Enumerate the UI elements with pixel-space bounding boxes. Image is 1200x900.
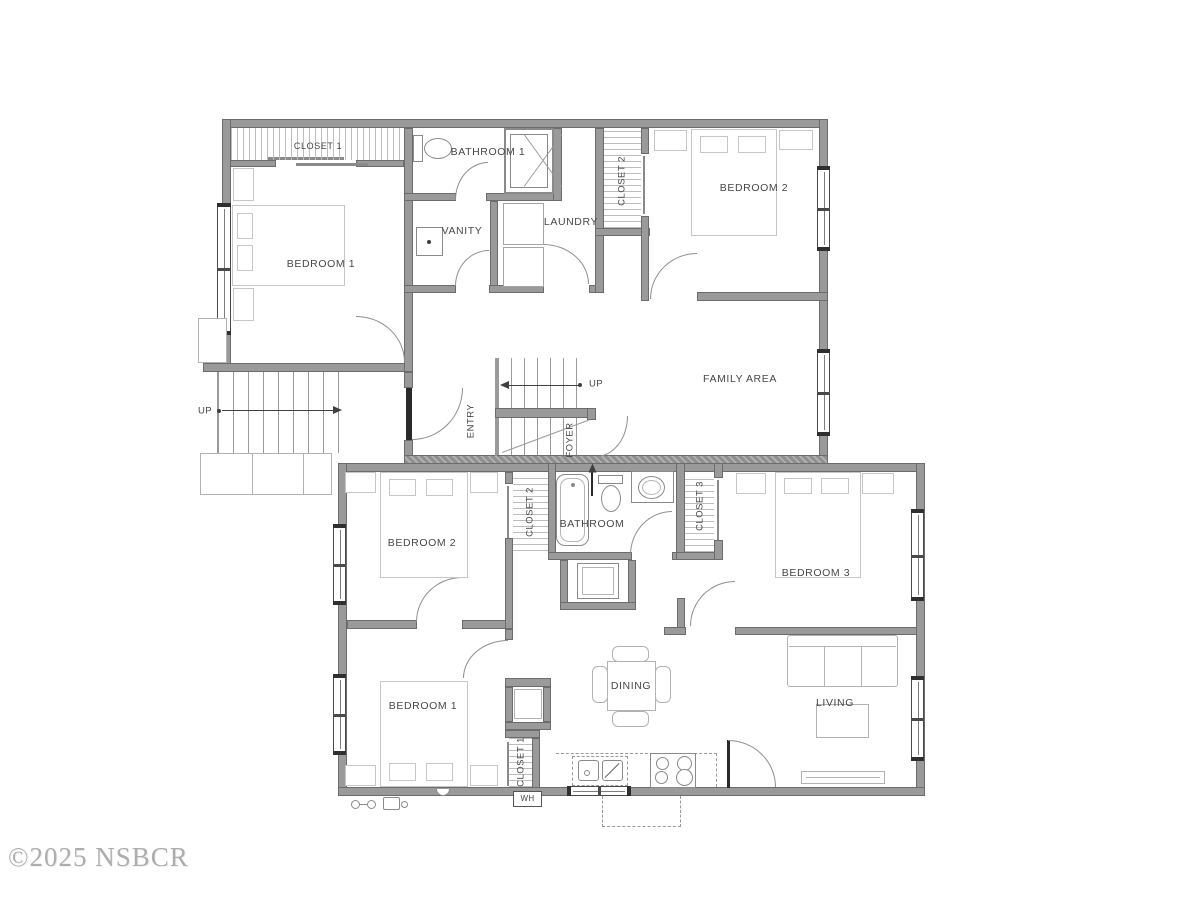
water-heater-label: WH	[521, 794, 535, 803]
wall-segment	[543, 687, 551, 722]
closet-door-panel	[507, 486, 509, 538]
wall-segment	[676, 463, 685, 560]
copyright-watermark: ©2025 NSBCR	[8, 842, 189, 873]
sofa-back-line	[789, 646, 896, 647]
room-label: ENTRY	[466, 404, 477, 439]
wall-segment	[548, 552, 632, 560]
nightstand	[470, 472, 498, 493]
pillow	[389, 479, 416, 496]
dining-chair	[612, 646, 649, 662]
wall-segment	[532, 738, 540, 788]
burner	[655, 771, 668, 784]
window	[570, 786, 628, 796]
room-label: CLOSET 3	[695, 481, 706, 531]
stair-landing-wall	[495, 408, 596, 418]
toilet-tank	[598, 475, 623, 484]
nightstand	[862, 473, 894, 494]
pillow	[389, 763, 416, 781]
wall-segment	[697, 292, 828, 301]
nightstand	[654, 130, 687, 151]
door-swing-arc	[543, 244, 589, 284]
wall-segment	[404, 285, 456, 293]
window	[911, 679, 924, 758]
wall-segment	[714, 540, 723, 560]
wall-segment	[641, 216, 649, 301]
stair-arrow-head	[333, 406, 342, 414]
door-swing-arc	[650, 253, 697, 299]
tv-console-line	[806, 777, 880, 778]
water-heater-box: WH	[513, 791, 542, 807]
sofa-seat-line	[824, 646, 825, 686]
door-swing-arc	[728, 740, 776, 787]
wall-segment	[347, 620, 417, 629]
pillow	[700, 136, 728, 153]
stair-arrow-dot	[578, 383, 582, 387]
window	[217, 206, 231, 332]
stair-up-label: UP	[589, 379, 603, 390]
window	[911, 512, 924, 598]
closet-sliding-door	[296, 163, 368, 166]
stair-arrow-line	[509, 385, 579, 386]
window	[817, 352, 830, 433]
nightstand	[470, 765, 498, 786]
wall-segment	[714, 463, 723, 478]
dining-chair	[655, 666, 671, 703]
room-label: BEDROOM 2	[720, 182, 788, 194]
stair-treads	[217, 372, 341, 453]
room-label: BEDROOM 1	[287, 258, 355, 270]
wall-segment	[505, 629, 513, 640]
room-label: CLOSET 2	[525, 487, 536, 537]
counter-edge	[716, 753, 717, 787]
dining-chair	[612, 711, 649, 727]
stair-treads	[497, 358, 588, 408]
pillow	[237, 245, 253, 271]
window	[817, 169, 830, 248]
burner	[656, 757, 669, 770]
utility-meter-icon	[383, 797, 400, 810]
door-swing-arc	[463, 640, 508, 678]
tub-drain	[571, 483, 575, 487]
stair-up-label: UP	[198, 406, 212, 417]
door-swing-arc	[356, 316, 405, 362]
floor-plan: UP UP CLOSET 1 BATHROOM 1 CLOSET 2 BEDRO…	[0, 0, 1200, 900]
door-swing-arc	[455, 250, 489, 286]
door-swing-arc	[455, 162, 488, 200]
pillow	[426, 479, 453, 496]
wall-segment	[664, 627, 686, 635]
pillow	[237, 213, 253, 239]
vanity-drain	[427, 240, 431, 244]
door-swing-arc	[412, 388, 463, 440]
nightstand	[233, 168, 254, 201]
wall-segment	[490, 201, 498, 293]
wall-segment	[560, 602, 636, 610]
door-swing-arc	[596, 416, 628, 457]
wall-segment	[641, 128, 649, 154]
plumbing-arrow-head	[589, 464, 597, 473]
pillow	[821, 478, 849, 494]
wall-segment	[404, 193, 456, 201]
room-label: LAUNDRY	[544, 216, 598, 228]
burner	[676, 769, 693, 786]
wall-segment	[404, 372, 413, 388]
door-swing-arc	[630, 511, 672, 555]
wall-segment	[505, 472, 513, 484]
sofa	[787, 635, 898, 687]
room-label: BEDROOM 2	[388, 537, 456, 549]
wall-segment	[505, 678, 551, 687]
room-label: DINING	[611, 680, 651, 692]
coffee-table	[816, 704, 869, 738]
room-label: LIVING	[816, 697, 854, 709]
stair-arrow-head	[500, 381, 509, 389]
room-label: CLOSET 2	[617, 156, 628, 206]
room-label: BATHROOM 1	[451, 146, 526, 158]
pillow	[426, 763, 453, 781]
toilet-tank	[413, 135, 423, 162]
plumbing-arrow-line	[591, 470, 593, 496]
window	[333, 677, 346, 752]
stair-landing-cell	[303, 453, 332, 495]
stair-arrow-dot	[217, 409, 221, 413]
wall-segment	[587, 408, 596, 420]
closet-door-panel	[717, 480, 719, 540]
wall-segment	[735, 627, 917, 635]
bathtub-basin	[560, 478, 585, 542]
wall-segment	[486, 193, 562, 201]
stair-landing-cell	[200, 453, 253, 495]
wall-segment	[404, 128, 413, 372]
toilet-bowl	[424, 138, 452, 159]
room-label: VANITY	[442, 225, 483, 237]
wall-segment	[203, 363, 413, 372]
nightstand	[233, 288, 254, 321]
wall-segment	[595, 128, 604, 293]
pillow	[738, 136, 766, 153]
room-label: CLOSET 1	[516, 737, 527, 787]
wall-segment	[505, 722, 551, 730]
wall-segment	[230, 160, 276, 167]
room-label: CLOSET 1	[294, 141, 342, 151]
utility-meter-dial	[401, 801, 408, 808]
wall-segment	[548, 463, 556, 560]
wall-segment	[505, 538, 513, 629]
room-label: BEDROOM 3	[782, 567, 850, 579]
door-swing-arc	[690, 581, 735, 626]
pillow	[784, 478, 812, 494]
pantry-box	[514, 689, 542, 719]
dining-chair	[592, 666, 608, 703]
window	[333, 527, 346, 602]
sink-drain	[584, 770, 590, 776]
room-label: FAMILY AREA	[703, 373, 777, 385]
nightstand	[345, 765, 376, 786]
room-label: BATHROOM	[560, 518, 625, 530]
nightstand	[779, 130, 813, 150]
stair-planter	[198, 318, 227, 363]
dryer	[503, 247, 544, 287]
wall-segment	[222, 119, 828, 128]
wall-segment	[505, 687, 513, 722]
vanity-basin-inner	[642, 480, 661, 495]
sofa-seat-line	[861, 646, 862, 686]
utility-valve-icon	[367, 800, 376, 809]
closet-door-panel	[643, 156, 645, 214]
stair-arrow-line	[222, 410, 333, 411]
stair-landing-cell	[252, 453, 304, 495]
toilet-bowl	[601, 485, 621, 512]
door-swing-arc	[416, 577, 462, 622]
room-label: BEDROOM 1	[389, 700, 457, 712]
linen-chase-inner	[582, 567, 614, 595]
wall-segment	[338, 787, 925, 796]
nightstand	[345, 472, 376, 493]
porch-outline	[602, 796, 681, 827]
washer	[503, 203, 544, 245]
room-label: FOYER	[565, 422, 576, 457]
nightstand	[736, 473, 766, 494]
